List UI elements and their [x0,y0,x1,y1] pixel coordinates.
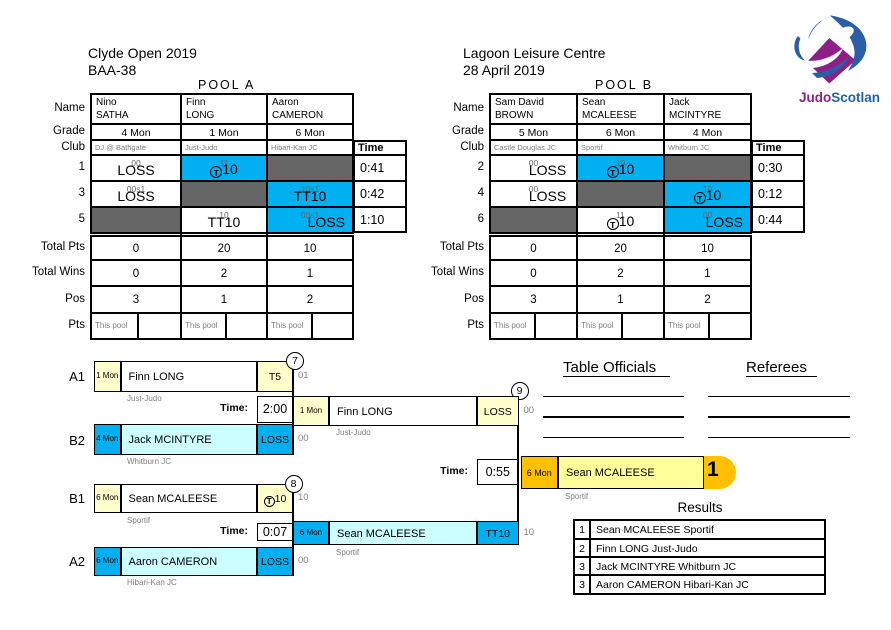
svg-text:JudoScotland: JudoScotland [799,90,880,105]
